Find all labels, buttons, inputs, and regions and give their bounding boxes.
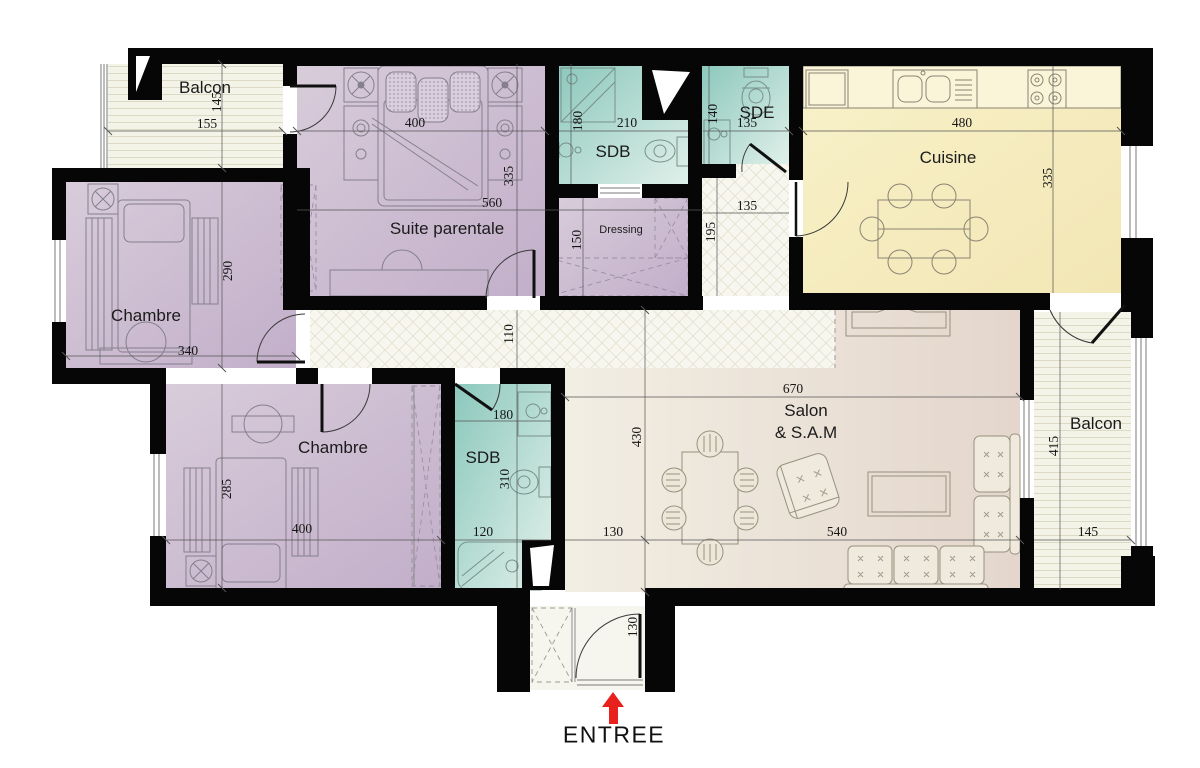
dim-salon-offset: 130: [603, 524, 623, 540]
dim-suite-w: 560: [482, 195, 502, 211]
dim-chambre-bottom-h: 285: [219, 479, 235, 499]
dim-chambre-left-h: 290: [220, 261, 236, 281]
dim-cuisine-h: 335: [1040, 168, 1056, 188]
dim-sdb-bottom-bottom-w: 120: [473, 524, 493, 540]
kitchen-counter: [803, 66, 1121, 108]
dim-salon-h: 430: [629, 427, 645, 447]
dim-chambre-left-w: 340: [178, 343, 198, 359]
dim-sdb-bottom-top-w: 180: [493, 407, 513, 423]
room-label-chambre-left: Chambre: [111, 306, 181, 326]
window-chambre-left: [55, 240, 60, 322]
room-corridor: [310, 310, 835, 368]
room-label-sdb-bottom: SDB: [466, 448, 501, 468]
dim-cuisine-w: 480: [952, 115, 972, 131]
dim-sdb-top-h: 180: [570, 111, 586, 131]
dim-sdb-bottom-h: 310: [497, 469, 513, 489]
bed-pillow: [450, 72, 480, 112]
room-label-chambre-bottom: Chambre: [298, 438, 368, 458]
dim-balcon-tl-h: 145: [209, 92, 225, 112]
sofa-bottom: [844, 546, 988, 592]
dim-suite-h: 335: [501, 166, 517, 186]
room-label-salon-line2: & S.A.M: [775, 423, 837, 443]
entrance-arrow-icon: [602, 692, 624, 724]
room-label-sdb-top: SDB: [596, 142, 631, 162]
dim-suite-bed-w: 400: [405, 115, 425, 131]
room-label-suite: Suite parentale: [390, 219, 504, 239]
railing-balcon-tl: [101, 64, 107, 168]
dim-hall-w: 135: [737, 198, 757, 214]
entrance-label: ENTREE: [563, 722, 665, 749]
dim-sde-h: 140: [705, 104, 721, 124]
dim-dressing-h: 150: [569, 230, 585, 250]
railing-balcon-right: [1136, 338, 1146, 546]
dim-sde-w: 135: [737, 115, 757, 131]
dim-balcon-right-h: 415: [1046, 436, 1062, 456]
dim-balcon-tl-w: 155: [197, 116, 217, 132]
room-label-cuisine: Cuisine: [920, 148, 977, 168]
door-sdb-top-sill: [600, 188, 640, 193]
window-cuisine: [1130, 146, 1136, 238]
bed-pillow: [386, 72, 416, 112]
room-label-balcon-right: Balcon: [1070, 414, 1122, 434]
window-chambre-bottom: [154, 454, 159, 536]
dim-corridor-h: 110: [501, 324, 517, 344]
dim-entrance-door-w: 130: [625, 617, 641, 637]
dim-salon-w: 670: [783, 381, 803, 397]
dim-balcon-right-w: 145: [1078, 524, 1098, 540]
dim-sdb-top-w: 210: [617, 115, 637, 131]
room-label-salon-line1: Salon: [784, 401, 827, 421]
window-salon-balcon: [1024, 400, 1029, 498]
dim-chambre-bottom-w: 400: [292, 521, 312, 537]
floor-plan: Balcon Suite parentale SDB SDE Cuisine D…: [0, 0, 1200, 768]
dim-hall-h: 195: [703, 222, 719, 242]
room-label-dressing: Dressing: [599, 224, 642, 236]
floor-plan-drawing: [0, 0, 1200, 768]
dim-salon-bottom-w: 540: [827, 524, 847, 540]
